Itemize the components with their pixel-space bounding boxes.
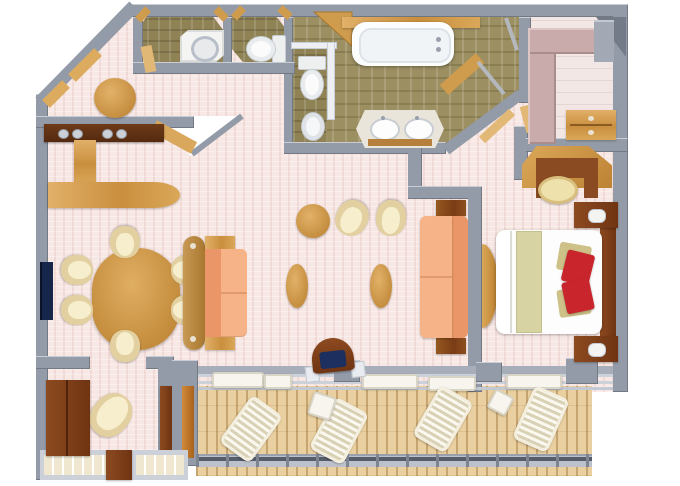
guest-toilet bbox=[246, 34, 284, 62]
tub-faucet bbox=[436, 37, 441, 42]
double-vanity bbox=[356, 110, 444, 148]
sofa-wood-back bbox=[183, 236, 205, 350]
wall-tv bbox=[40, 262, 53, 320]
tub-faucet bbox=[436, 47, 441, 52]
bathtub bbox=[352, 22, 454, 66]
sofa-cushion-seam bbox=[420, 276, 452, 278]
sofa2-end-table bbox=[436, 338, 466, 354]
nightstand-lamp bbox=[588, 343, 606, 357]
oval-coffee-table bbox=[370, 264, 392, 308]
sofa-back-detail bbox=[190, 243, 196, 249]
bathroom-bin bbox=[301, 112, 325, 141]
master-toilet bbox=[296, 56, 326, 100]
bed-headboard bbox=[600, 226, 616, 338]
writing-desk bbox=[522, 146, 612, 200]
nightstand bbox=[574, 202, 618, 228]
toilet-bowl bbox=[300, 69, 324, 100]
vanity-sink bbox=[370, 118, 400, 141]
door-frame-trim bbox=[280, 8, 290, 17]
dining-chair bbox=[110, 226, 140, 258]
bar-sink bbox=[72, 129, 83, 139]
sofa-back-detail bbox=[190, 336, 196, 342]
vanity-apron bbox=[368, 139, 432, 146]
bar-sink bbox=[116, 129, 127, 139]
bar-sink bbox=[102, 129, 113, 139]
hall-round-table bbox=[94, 78, 136, 118]
desk-stool bbox=[538, 176, 578, 204]
door-frame-trim bbox=[216, 9, 226, 19]
shower-tray bbox=[180, 30, 224, 62]
sofa-armrest bbox=[205, 337, 235, 350]
shower-glass-panel bbox=[478, 62, 504, 94]
door-frame-trim bbox=[234, 8, 243, 18]
wet-bar-counter bbox=[44, 124, 164, 142]
shower-room-door bbox=[146, 46, 151, 72]
desk-chair-navy bbox=[302, 335, 364, 385]
dining-chair bbox=[110, 330, 140, 362]
bar-sink bbox=[58, 129, 69, 139]
dresser-drawer-line bbox=[570, 124, 612, 126]
closet-dresser bbox=[566, 110, 616, 140]
desk-leg bbox=[584, 178, 598, 198]
sink-faucet bbox=[381, 116, 385, 120]
bathtub-basin bbox=[359, 28, 451, 63]
dresser-knob bbox=[588, 130, 594, 135]
sofa-second bbox=[420, 216, 468, 338]
closet-shelving bbox=[594, 20, 614, 62]
bar-return-counter bbox=[48, 182, 180, 208]
tub-end-deck bbox=[444, 58, 480, 90]
sofa-main bbox=[183, 236, 255, 350]
bed-runner bbox=[516, 231, 542, 333]
dresser-knob bbox=[588, 116, 594, 121]
sofa-back-cushion bbox=[452, 216, 468, 338]
sink-faucet bbox=[415, 116, 419, 120]
round-side-table bbox=[296, 204, 330, 238]
chair-navy-cushion bbox=[319, 350, 347, 370]
floor-plan bbox=[0, 0, 680, 486]
sofa-cushion-seam bbox=[221, 292, 247, 294]
dining-chair bbox=[61, 295, 93, 325]
bed-foot-roll bbox=[497, 231, 512, 333]
wall-wedge-edge bbox=[192, 116, 242, 154]
wardrobe-door-gap bbox=[66, 380, 68, 456]
nightstand bbox=[574, 336, 618, 362]
sofa-back-cushion bbox=[205, 249, 221, 337]
vanity-sink bbox=[404, 118, 434, 141]
nook-wardrobe bbox=[46, 380, 90, 456]
closet-wardrobe-unit bbox=[528, 28, 596, 54]
dining-chair bbox=[61, 255, 93, 285]
desk-inner bbox=[536, 158, 598, 178]
toilet-tank bbox=[298, 56, 326, 70]
toilet-bowl bbox=[246, 36, 276, 62]
door-frame-trim bbox=[138, 9, 148, 20]
nightstand-lamp bbox=[588, 209, 606, 223]
sofa2-end-table bbox=[436, 200, 466, 216]
shower-drain bbox=[191, 36, 219, 62]
sofa-armrest bbox=[205, 236, 235, 249]
shower-glass-panel bbox=[506, 18, 517, 50]
bed bbox=[496, 226, 616, 338]
oval-coffee-table bbox=[286, 264, 308, 308]
bar-counter-leg bbox=[74, 140, 96, 184]
